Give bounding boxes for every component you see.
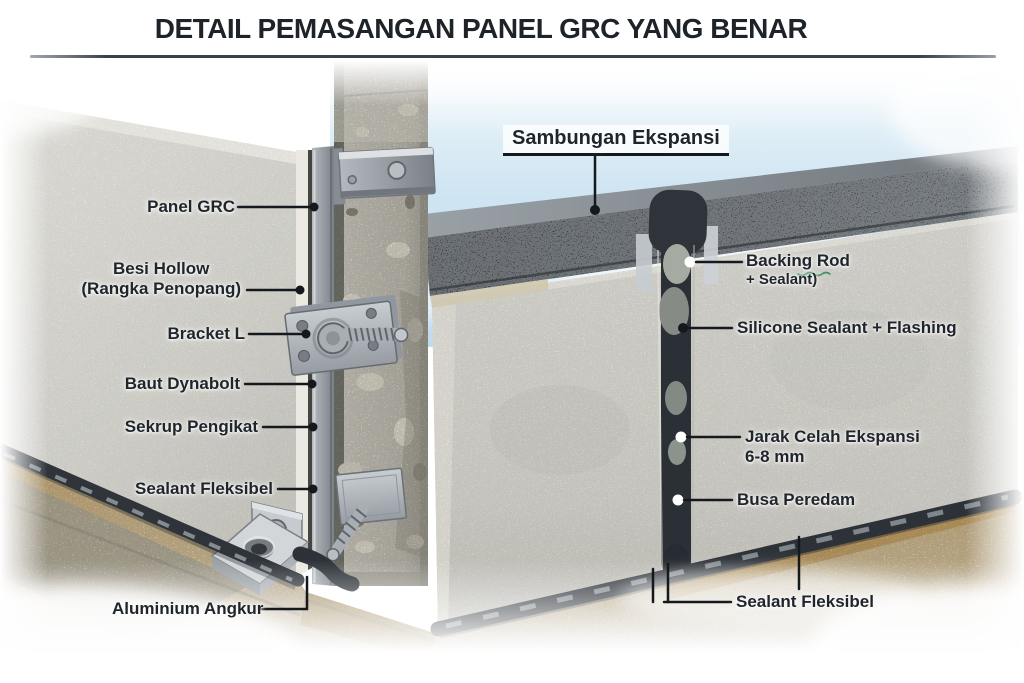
page-title: DETAIL PEMASANGAN PANEL GRC YANG BENAR [0, 13, 1024, 45]
label-jarak-celah-line2: 6-8 mm [745, 447, 920, 467]
label-backing-rod-line1: Backing Rod [746, 251, 850, 271]
label-besi-hollow-line2: (Rangka Penopang) [81, 279, 241, 299]
label-aluminium-angkur: Aluminium Angkur [112, 599, 263, 619]
label-panel-grc: Panel GRC [147, 197, 235, 217]
label-sealant-fleksibel-left: Sealant Fleksibel [135, 479, 273, 499]
label-backing-rod-line2: + Sealant) [746, 271, 850, 289]
label-baut-dynabolt: Baut Dynabolt [125, 374, 240, 394]
infographic-canvas: DETAIL PEMASANGAN PANEL GRC YANG BENAR P… [0, 0, 1024, 683]
label-besi-hollow: Besi Hollow (Rangka Penopang) [81, 259, 241, 299]
label-backing-rod: Backing Rod + Sealant) [746, 251, 850, 289]
label-jarak-celah-ekspansi: Jarak Celah Ekspansi 6-8 mm [745, 427, 920, 467]
label-sealant-fleksibel-right: Sealant Fleksibel [736, 592, 874, 612]
label-busa-peredam: Busa Peredam [737, 490, 855, 510]
label-bracket-l: Bracket L [168, 324, 245, 344]
label-silicone-sealant-flashing: Silicone Sealant + Flashing [737, 318, 957, 338]
label-jarak-celah-line1: Jarak Celah Ekspansi [745, 427, 920, 447]
label-sambungan-ekspansi: Sambungan Ekspansi [503, 125, 729, 156]
title-rule [30, 55, 996, 58]
installation-illustration [0, 0, 1024, 683]
label-besi-hollow-line1: Besi Hollow [81, 259, 241, 279]
strap-bolt-head [388, 161, 406, 179]
label-sekrup-pengikat: Sekrup Pengikat [125, 417, 258, 437]
